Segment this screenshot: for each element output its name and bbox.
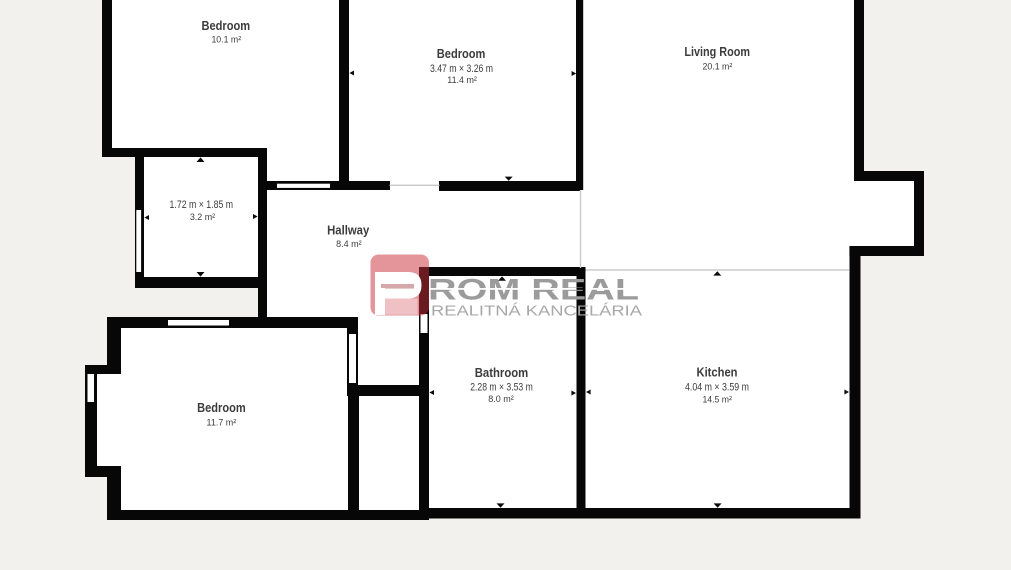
svg-text:8.4 m²: 8.4 m² — [336, 238, 362, 249]
svg-text:Kitchen: Kitchen — [697, 364, 738, 379]
svg-text:1.72 m × 1.85 m: 1.72 m × 1.85 m — [170, 199, 234, 211]
svg-text:2.28 m × 3.53 m: 2.28 m × 3.53 m — [470, 381, 533, 393]
svg-text:3.2 m²: 3.2 m² — [190, 211, 215, 222]
svg-text:4.04 m × 3.59 m: 4.04 m × 3.59 m — [685, 381, 749, 393]
svg-text:Hallway: Hallway — [327, 223, 370, 238]
svg-text:ROM REAL: ROM REAL — [428, 273, 639, 306]
svg-text:Bedroom: Bedroom — [202, 18, 251, 33]
svg-text:14.5 m²: 14.5 m² — [702, 393, 732, 404]
svg-text:Living Room: Living Room — [684, 44, 750, 59]
svg-text:Bedroom: Bedroom — [437, 46, 486, 61]
svg-text:8.0 m²: 8.0 m² — [488, 393, 514, 404]
svg-text:REALITNÁ KANCELÁRIA: REALITNÁ KANCELÁRIA — [431, 303, 642, 320]
svg-text:20.1 m²: 20.1 m² — [703, 60, 733, 71]
svg-text:11.7 m²: 11.7 m² — [207, 417, 237, 428]
svg-text:Bedroom: Bedroom — [197, 400, 246, 415]
svg-text:11.4 m²: 11.4 m² — [447, 74, 477, 85]
svg-text:Bathroom: Bathroom — [475, 365, 529, 380]
svg-text:10.1 m²: 10.1 m² — [211, 33, 241, 44]
